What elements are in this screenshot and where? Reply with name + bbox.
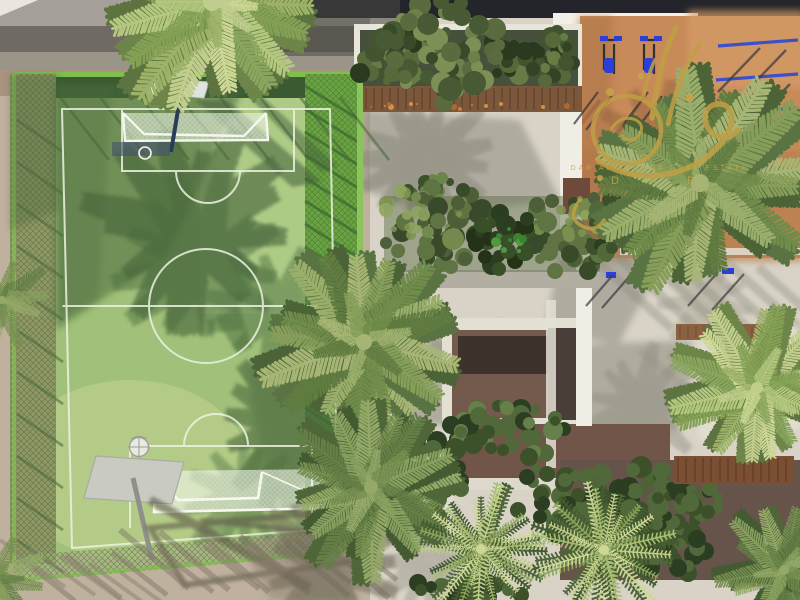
svg-text:D A R: D A R bbox=[611, 175, 709, 187]
svg-text:DAR AL KARAMA REAL ESTATE: DAR AL KARAMA REAL ESTATE bbox=[571, 165, 750, 172]
